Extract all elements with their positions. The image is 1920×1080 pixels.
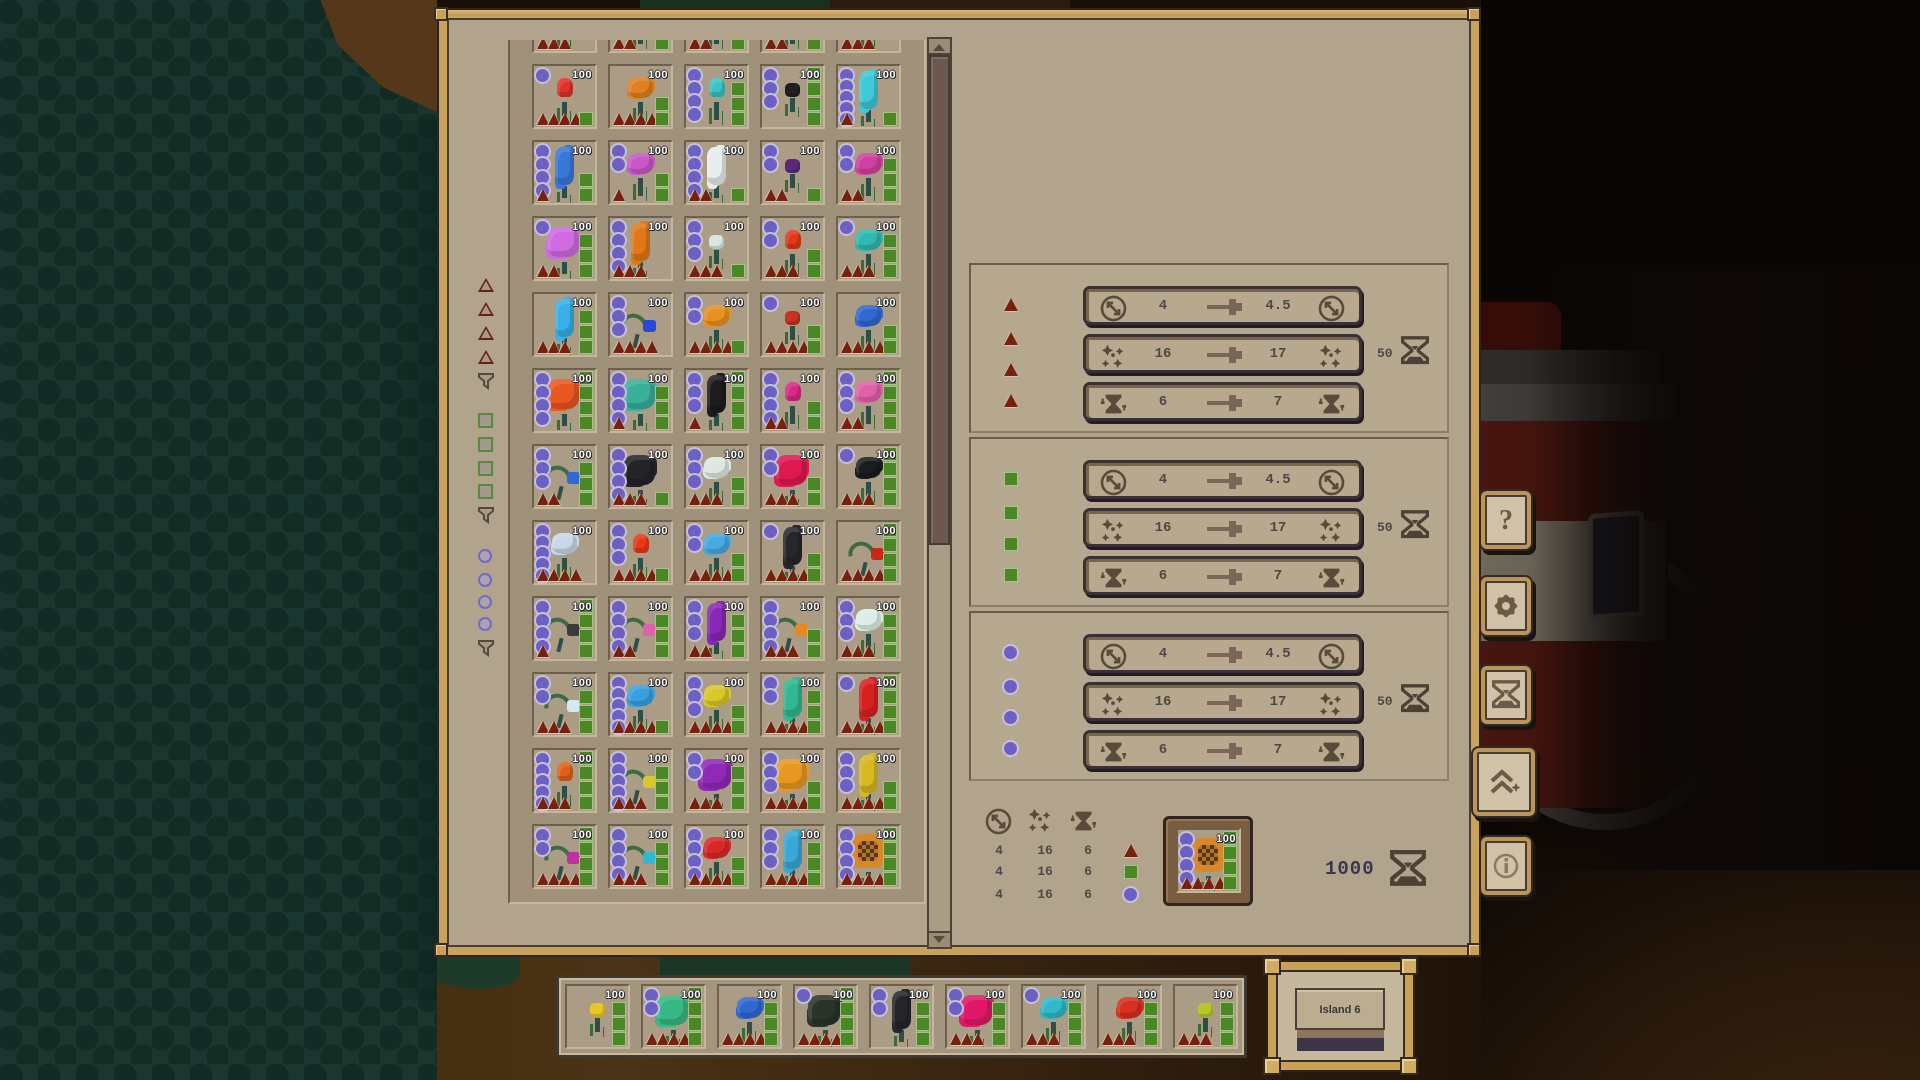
svg-text:?: ? — [1499, 505, 1513, 535]
